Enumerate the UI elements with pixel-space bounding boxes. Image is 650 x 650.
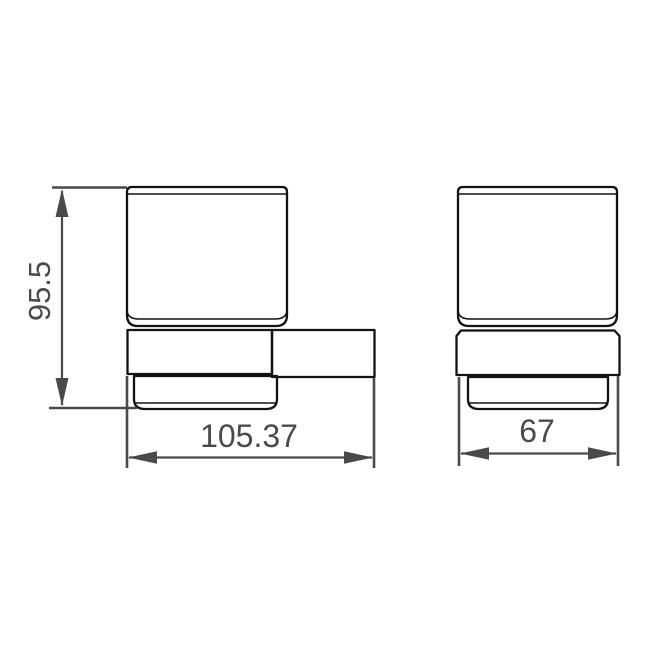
technical-drawing: 95.5 105.37 67 <box>0 0 650 650</box>
side-width-dim-arrow-left <box>460 447 489 460</box>
side-width-dim-label: 67 <box>519 413 555 449</box>
side-view-cup-base <box>468 377 608 409</box>
front-view-cup-base <box>134 376 277 409</box>
height-dim-label: 95.5 <box>22 261 57 321</box>
side-view-cup <box>458 187 617 326</box>
height-dim-arrow-down <box>56 378 69 406</box>
side-width-dim-arrow-right <box>588 447 617 460</box>
front-width-dim-arrow-left <box>128 451 157 464</box>
side-view <box>457 187 620 409</box>
wall-bracket <box>272 330 375 377</box>
side-width-dimension: 67 <box>459 376 618 466</box>
front-width-dim-label: 105.37 <box>200 418 298 454</box>
front-width-dim-arrow-right <box>344 451 373 464</box>
side-view-holder-ring <box>457 331 620 376</box>
front-view <box>127 187 375 409</box>
front-width-dimension: 105.37 <box>127 376 374 468</box>
drawing-canvas: 95.5 105.37 67 <box>0 0 650 650</box>
front-view-cup <box>127 187 287 326</box>
side-view-cup-bottom-line <box>458 311 617 319</box>
front-view-cup-bottom-line <box>127 311 287 319</box>
front-view-holder-ring <box>128 330 273 374</box>
height-dimension: 95.5 <box>22 188 137 409</box>
height-dim-arrow-up <box>56 189 69 217</box>
